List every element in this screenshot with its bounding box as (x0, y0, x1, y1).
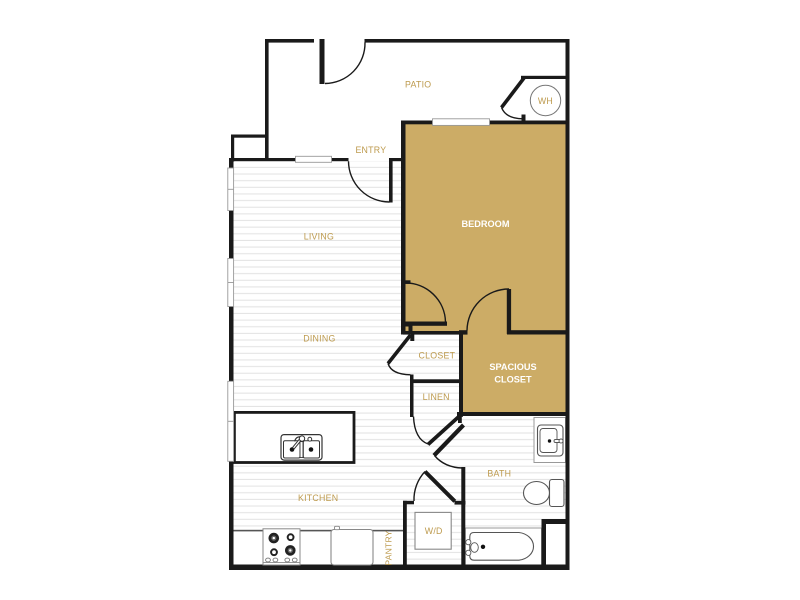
svg-text:LINEN: LINEN (423, 392, 450, 402)
svg-text:CLOSET: CLOSET (419, 351, 456, 361)
svg-text:ENTRY: ENTRY (355, 145, 386, 155)
svg-text:W/D: W/D (425, 526, 443, 536)
svg-text:DINING: DINING (303, 333, 335, 343)
svg-text:BEDROOM: BEDROOM (462, 219, 510, 229)
svg-text:WH: WH (538, 96, 553, 106)
svg-text:BATH: BATH (487, 469, 511, 479)
svg-text:LIVING: LIVING (304, 231, 334, 241)
svg-text:SPACIOUS: SPACIOUS (489, 362, 536, 372)
svg-text:PANTRY: PANTRY (383, 530, 393, 565)
svg-text:KITCHEN: KITCHEN (298, 493, 338, 503)
svg-text:PATIO: PATIO (405, 79, 431, 89)
svg-text:CLOSET: CLOSET (494, 375, 532, 385)
